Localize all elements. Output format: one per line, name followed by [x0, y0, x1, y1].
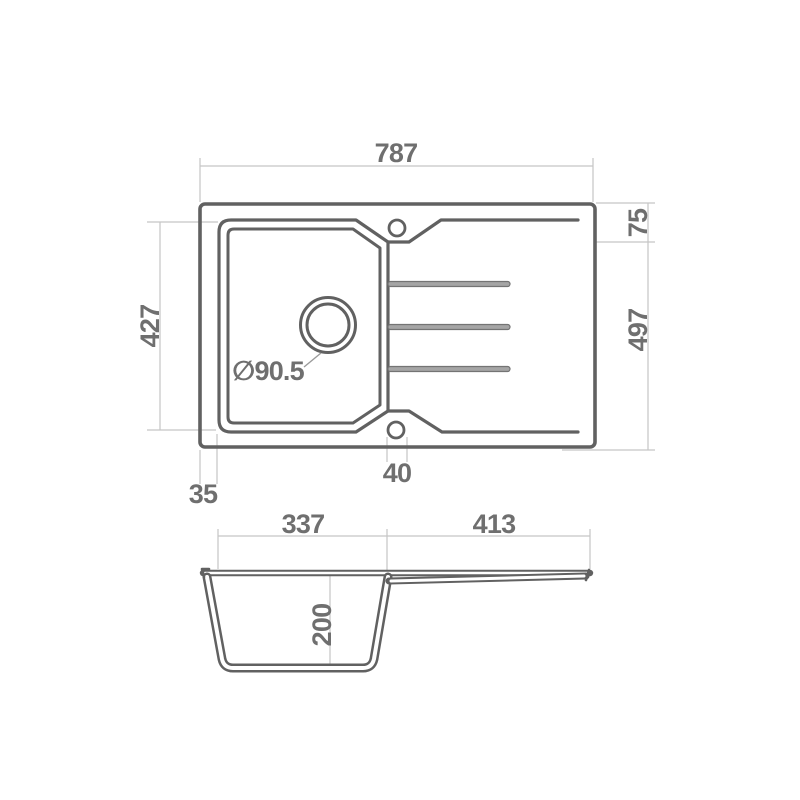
bowl-outer-contour [219, 220, 388, 432]
label-bowl-length: 427 [135, 305, 165, 348]
sink-plan-view [200, 204, 595, 447]
faucet-hole-top [389, 220, 405, 236]
label-drain-diameter: ∅90.5 [232, 356, 304, 386]
drainboard-ridge-1 [388, 282, 510, 287]
label-section-drainboard-width: 413 [473, 509, 516, 539]
label-edge-to-recess: 75 [623, 208, 653, 237]
faucet-hole-bottom [388, 422, 404, 438]
drainboard-top-rim [388, 220, 578, 242]
label-section-bowl-depth: 200 [307, 604, 337, 647]
label-recess-width: 40 [383, 458, 411, 488]
drainboard-ridge-2 [388, 325, 510, 330]
drain-diameter-leader-line [304, 353, 321, 367]
drain-outer-circle [301, 298, 356, 353]
section-bowl-profile [207, 577, 388, 668]
sink-section-view [202, 569, 590, 668]
section-bowl-profile-core [207, 577, 388, 668]
label-section-bowl-width: 337 [282, 509, 325, 539]
section-dimension-lines [218, 529, 590, 667]
technical-drawing-canvas: 787 75 497 427 35 40 ∅90.5 337 413 200 [0, 0, 800, 800]
drain-inner-circle [307, 304, 349, 346]
drainboard-bottom-rim [388, 411, 578, 432]
sink-technical-drawing: 787 75 497 427 35 40 ∅90.5 337 413 200 [0, 0, 800, 800]
label-edge-to-bowl: 35 [189, 479, 218, 509]
drainboard-ridge-3 [388, 367, 510, 372]
bowl-inner-contour [228, 229, 380, 423]
label-overall-depth: 497 [623, 309, 653, 352]
label-overall-width: 787 [375, 138, 418, 168]
